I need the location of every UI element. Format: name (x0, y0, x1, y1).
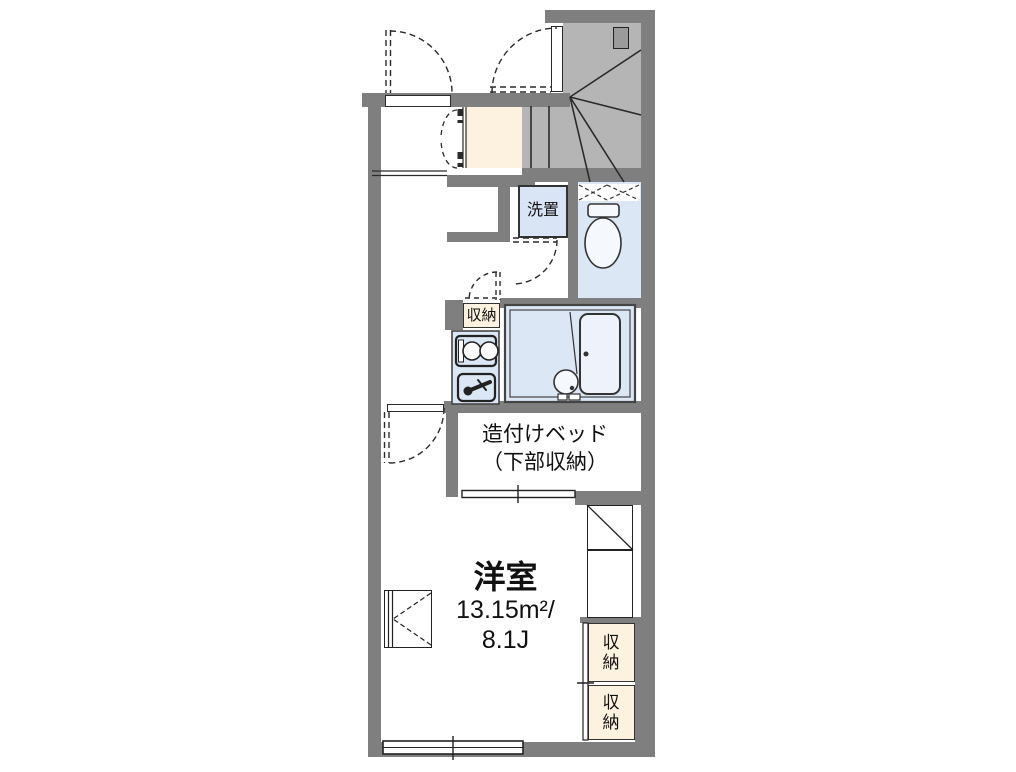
main-room-area-tatami: 8.1J (408, 625, 603, 655)
refrigerator-diagonal (587, 505, 633, 550)
storage-right-lower-label: 収納 (600, 687, 622, 738)
porch-left-door-swing (386, 30, 452, 93)
main-room-door-swing (385, 408, 445, 463)
storage-kitchen-label: 収納 (463, 303, 500, 328)
bathroom-unit (505, 305, 635, 402)
washer-space-label: 洗置 (518, 185, 568, 238)
toilet-window (578, 184, 640, 201)
kitchen-unit (452, 331, 499, 404)
built-in-bed-label: 造付けベッド （下部収納） (458, 421, 632, 478)
main-room-name: 洋室 (408, 560, 603, 595)
washroom-door-swing (465, 272, 500, 300)
bed-sliding-doors (462, 485, 575, 503)
storage-right-upper-label: 収納 (600, 626, 622, 679)
closet-double-doors (372, 107, 466, 176)
entrance-door-swing (490, 28, 557, 93)
staircase-treads (531, 50, 641, 182)
plan-linework (0, 0, 1016, 772)
main-room-label: 洋室 13.15m²/ 8.1J (408, 560, 603, 655)
bottom-window (383, 736, 523, 760)
main-room-area-sqm: 13.15m²/ (408, 595, 603, 625)
toilet-fixture (585, 204, 621, 268)
floor-plan: 洗置 収納 造付けベッド （下部収納） 洋室 13.15m²/ 8.1J 収納 … (0, 0, 1016, 772)
washer-room-door-swing (513, 238, 557, 284)
wash-basin-icon (554, 370, 578, 394)
